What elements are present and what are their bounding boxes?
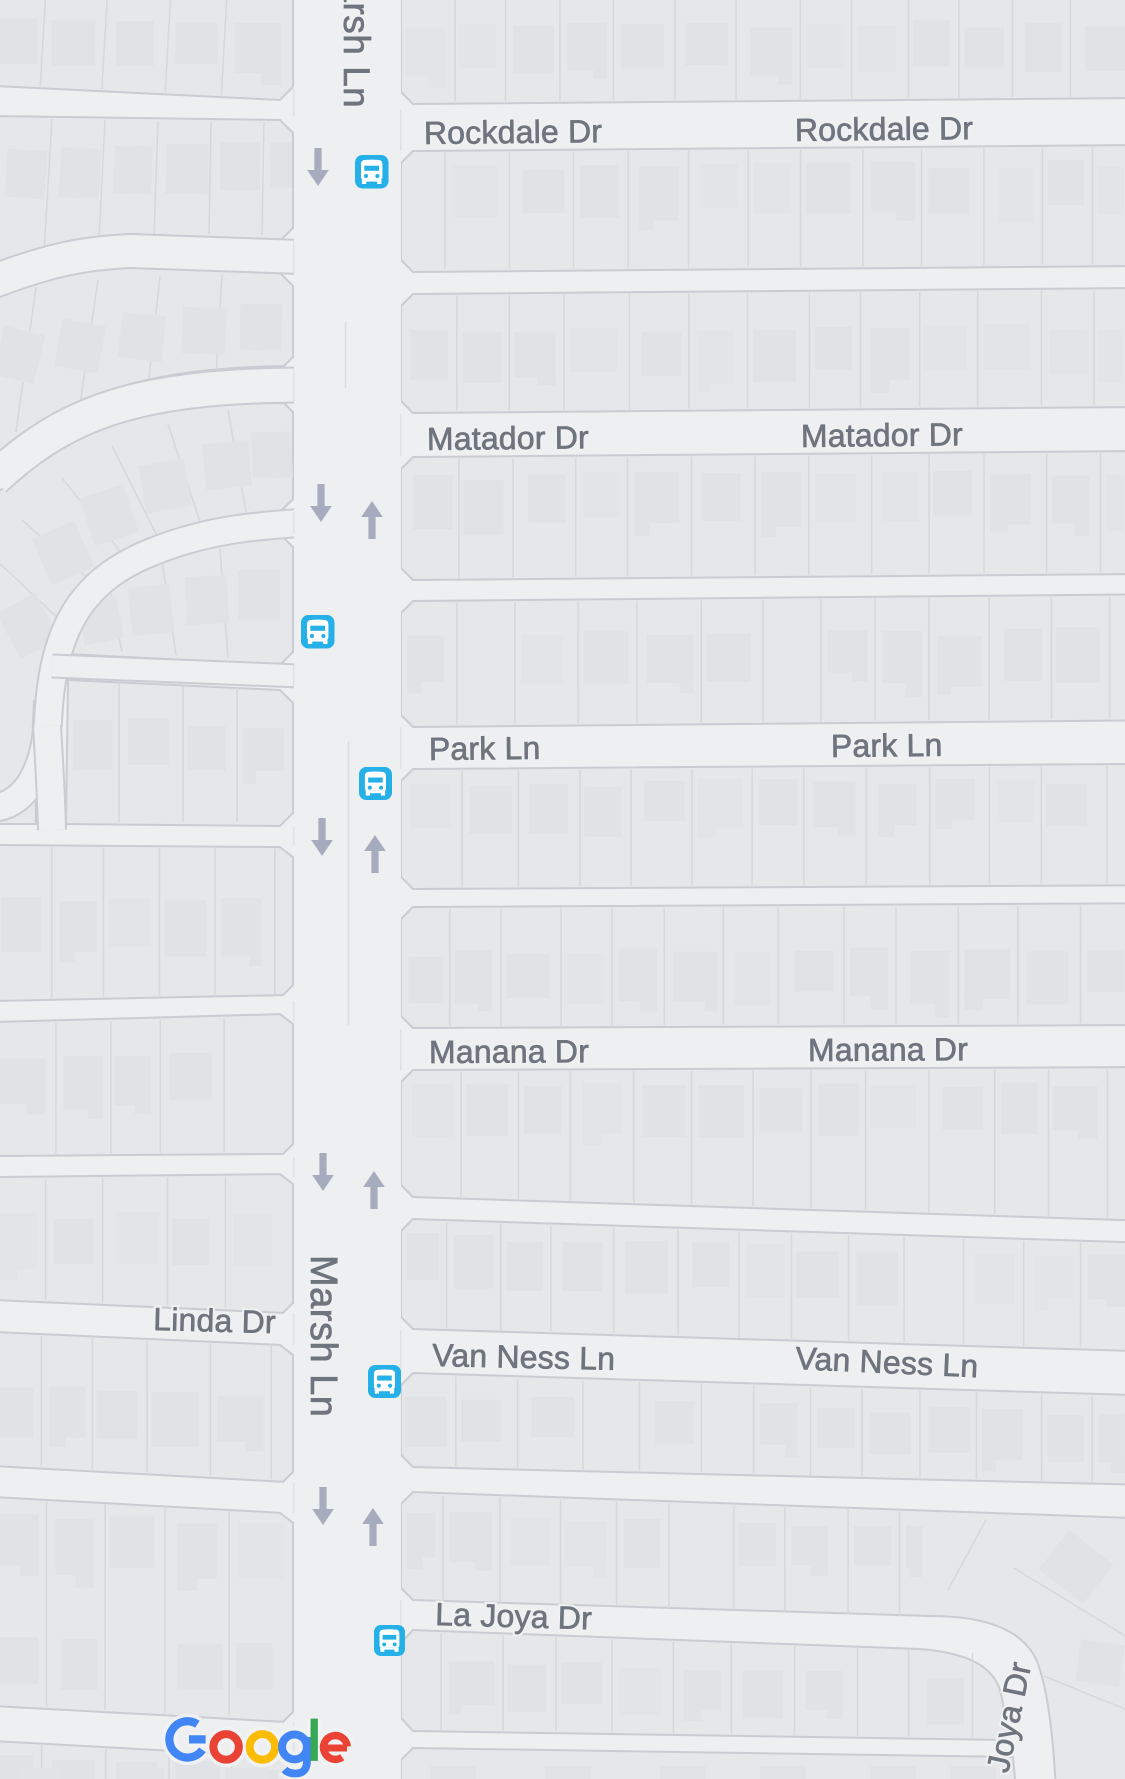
svg-text:Park Ln: Park Ln: [429, 730, 541, 767]
svg-text:Manana Dr: Manana Dr: [429, 1033, 589, 1070]
svg-text:Matador Dr: Matador Dr: [801, 416, 964, 454]
svg-text:Matador Dr: Matador Dr: [427, 419, 590, 457]
svg-text:Van Ness Ln: Van Ness Ln: [432, 1337, 616, 1377]
svg-text:Rockdale Dr: Rockdale Dr: [424, 113, 603, 151]
svg-text:La Joya Dr: La Joya Dr: [435, 1596, 593, 1636]
svg-text:Park Ln: Park Ln: [831, 727, 943, 764]
svg-text:Rockdale Dr: Rockdale Dr: [795, 110, 974, 148]
svg-text:Marsh Ln: Marsh Ln: [302, 1255, 344, 1417]
svg-text:Manana Dr: Manana Dr: [808, 1031, 968, 1068]
svg-text:Marsh Ln: Marsh Ln: [336, 0, 377, 108]
svg-text:Linda Dr: Linda Dr: [153, 1301, 277, 1340]
